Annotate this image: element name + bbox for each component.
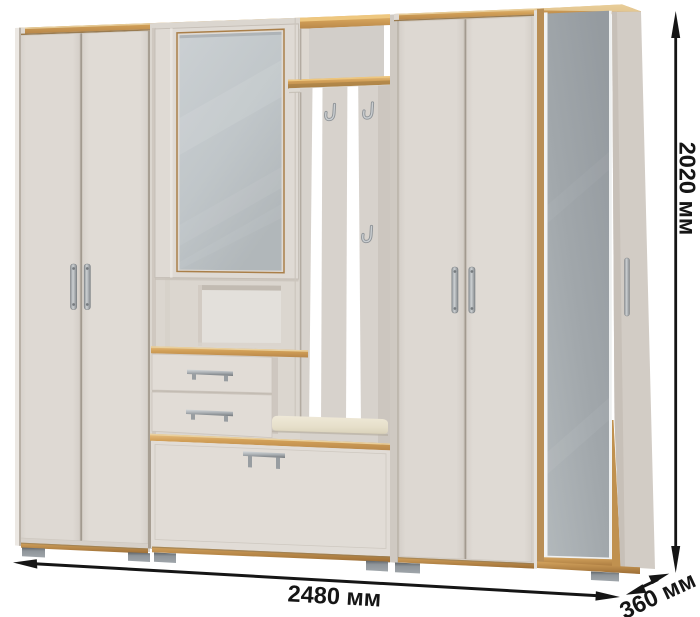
svg-text:2020 мм: 2020 мм: [675, 142, 700, 236]
svg-text:2480 мм: 2480 мм: [287, 580, 382, 611]
